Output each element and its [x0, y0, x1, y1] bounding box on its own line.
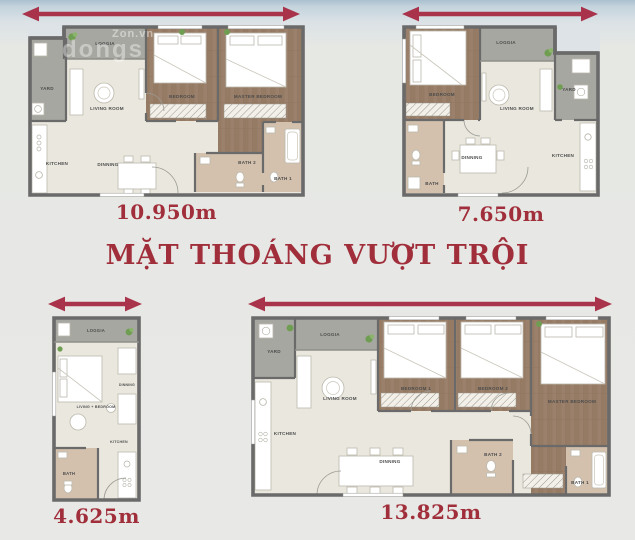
room-label-bath1: BATH 1 [571, 480, 589, 485]
room-label-bath2: BATH 2 [238, 160, 256, 165]
wardrobe-bedroom [406, 103, 450, 116]
kitchen-counter [580, 123, 596, 191]
room-label-dinning: DINNING [97, 162, 118, 167]
room-label-living: LIVING ROOM [90, 106, 124, 111]
dimension-label-studio: 4.625m [30, 504, 163, 528]
bed-bedroom2 [461, 322, 523, 378]
room-label-bedroom2: BEDROOM 2 [478, 386, 508, 391]
floorplan-one-bed: BEDROOM LOGGIA YARD LIVING ROOM DINNING … [402, 25, 600, 197]
kitchen-counter [118, 452, 136, 498]
room-label-dinning: DINNING [379, 459, 400, 464]
floorplan-studio: LOGGIA LIVING + BEDROOM DINNING BATH KIT… [52, 316, 141, 502]
room-label-living: LIVING ROOM [500, 106, 534, 111]
room-label-bath: BATH [425, 181, 439, 186]
room-loggia [480, 27, 555, 61]
wardrobe-bedroom [150, 104, 206, 118]
bed-bedroom [154, 33, 206, 83]
room-label-bath2: BATH 2 [484, 452, 502, 457]
room-label-bedroom: BEDROOM [429, 92, 455, 97]
bed-living [58, 356, 102, 402]
round-table [70, 414, 86, 430]
console [118, 348, 136, 374]
room-label-bath: BATH [63, 471, 75, 476]
dimension-arrow-two-bed [20, 3, 302, 25]
floorplan-poster: { "title": "MẶT THOÁNG VƯỢT TRỘI", "wate… [0, 0, 635, 540]
floorplan-three-bed: YARD LOGGIA LIVING ROOM BEDROOM 1 BEDROO… [251, 316, 611, 497]
room-label-yard: YARD [562, 87, 576, 92]
wardrobe-master [224, 104, 286, 118]
room-label-living-bedroom: LIVING + BEDROOM [77, 405, 116, 409]
room-label-loggia: LOGGIA [496, 40, 516, 45]
dining-table [339, 448, 413, 494]
kitchen-counter [32, 125, 47, 193]
room-label-kitchen: KITCHEN [46, 161, 69, 166]
room-label-master: MASTER BEDROOM [234, 94, 282, 99]
room-label-loggia: LOGGIA [320, 332, 340, 337]
floorplan-two-bed: LOGGIA YARD LIVING ROOM BEDROOM MASTER B… [28, 25, 305, 197]
dimension-label-three-bed: 13.825m [251, 500, 611, 524]
room-label-yard: YARD [267, 349, 281, 354]
bed-bedroom [410, 31, 466, 85]
bed-bedroom1 [384, 322, 446, 378]
page-title: MẶT THOÁNG VƯỢT TRỘI [0, 240, 635, 271]
dimension-arrow-studio [46, 293, 144, 315]
room-label-bedroom: BEDROOM [169, 94, 195, 99]
dimension-arrow-one-bed [400, 3, 600, 25]
room-label-living: LIVING ROOM [323, 396, 357, 401]
room-label-kitchen: KITCHEN [552, 153, 575, 158]
room-label-loggia: LOGGIA [87, 328, 105, 333]
bed-master [226, 33, 286, 87]
room-label-dinning: DINNING [461, 155, 482, 160]
kitchen-counter [255, 382, 271, 490]
dimension-label-one-bed: 7.650m [402, 202, 600, 226]
wardrobe-bedroom2 [458, 393, 516, 407]
room-label-yard: YARD [40, 86, 54, 91]
room-label-kitchen: KITCHEN [274, 431, 297, 436]
room-label-bath1: BATH 1 [274, 176, 292, 181]
wardrobe-master [523, 474, 563, 488]
room-label-bedroom1: BEDROOM 1 [401, 386, 431, 391]
room-label-dinning: DINNING [119, 383, 135, 387]
wardrobe-bedroom1 [381, 393, 439, 407]
dimension-label-two-bed: 10.950m [28, 200, 305, 224]
room-label-kitchen: KITCHEN [110, 440, 128, 444]
yard-washer [259, 324, 273, 338]
room-label-master: MASTER BEDROOM [548, 399, 596, 404]
bed-master [541, 324, 605, 384]
dimension-arrow-three-bed [246, 293, 614, 315]
room-label-loggia: LOGGIA [95, 41, 115, 46]
